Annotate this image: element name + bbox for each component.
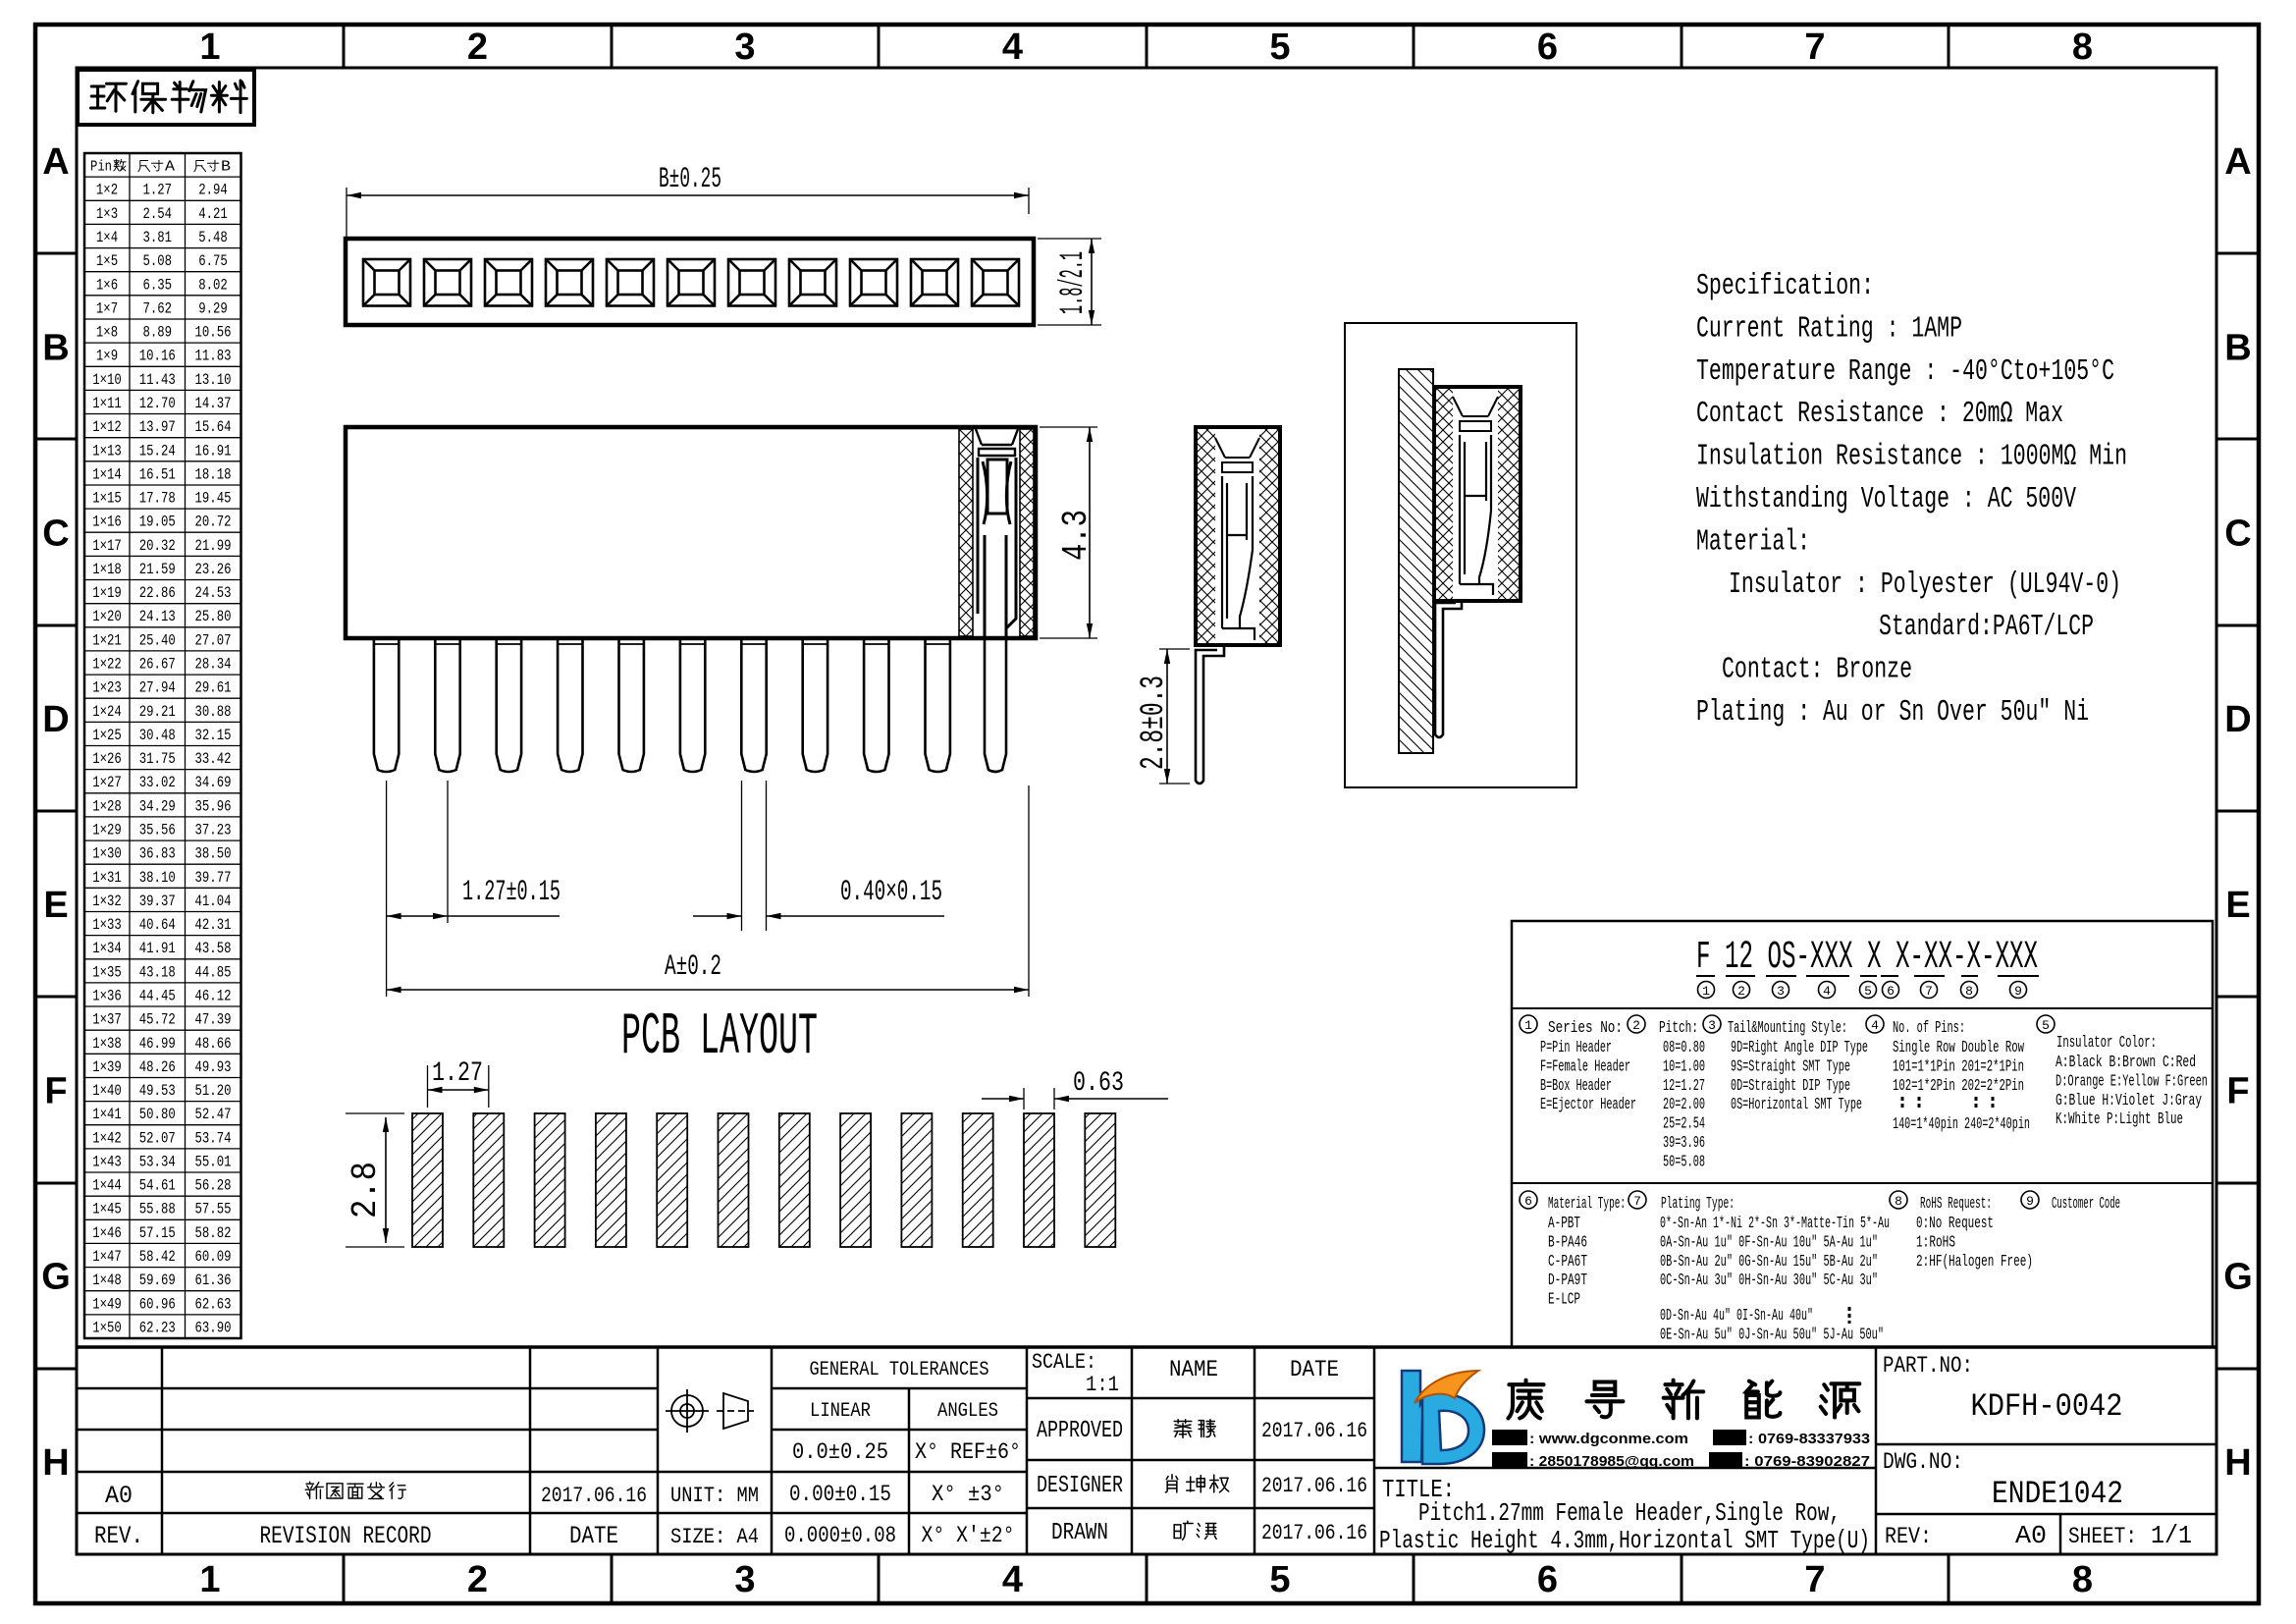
svg-text:G: G bbox=[41, 1257, 71, 1298]
svg-text:57.55: 57.55 bbox=[195, 1201, 232, 1218]
svg-text:1×44: 1×44 bbox=[92, 1177, 122, 1195]
svg-text:33.02: 33.02 bbox=[139, 774, 176, 791]
svg-text:61.36: 61.36 bbox=[195, 1272, 232, 1289]
svg-text:REV.: REV. bbox=[94, 1522, 143, 1550]
svg-text:140=1*40pin 240=2*40pin: 140=1*40pin 240=2*40pin bbox=[1893, 1114, 2030, 1133]
svg-text:46.99: 46.99 bbox=[139, 1035, 176, 1053]
svg-text:1×17: 1×17 bbox=[92, 537, 122, 555]
svg-text:1×33: 1×33 bbox=[92, 916, 122, 934]
svg-text:48.26: 48.26 bbox=[139, 1058, 176, 1076]
svg-text:Pin: Pin bbox=[90, 159, 112, 176]
svg-text:51.20: 51.20 bbox=[195, 1082, 232, 1100]
svg-text:DATE: DATE bbox=[1290, 1357, 1339, 1382]
svg-text:62.23: 62.23 bbox=[139, 1319, 176, 1336]
svg-text:2: 2 bbox=[1737, 984, 1745, 999]
svg-text:5: 5 bbox=[1269, 1559, 1290, 1600]
svg-text:39.77: 39.77 bbox=[195, 869, 232, 887]
svg-text:0A-Sn-Au 1u" 0F-Sn-Au 10u" 5A: 0A-Sn-Au 1u" 0F-Sn-Au 10u" 5A-Au 1u" bbox=[1660, 1232, 1878, 1251]
svg-text:3: 3 bbox=[734, 1559, 755, 1600]
svg-text:: 0769-83337933: : 0769-83337933 bbox=[1748, 1431, 1870, 1447]
svg-text:1×24: 1×24 bbox=[92, 703, 122, 721]
svg-text:2.8±0.3: 2.8±0.3 bbox=[1136, 676, 1173, 770]
svg-text:D:Orange E:Yellow F:Green: D:Orange E:Yellow F:Green bbox=[2056, 1071, 2208, 1090]
svg-text:1×25: 1×25 bbox=[92, 727, 122, 744]
svg-text:42.31: 42.31 bbox=[195, 916, 232, 934]
svg-text:Plastic Height 4.3mm,Horizonta: Plastic Height 4.3mm,Horizontal SMT Type… bbox=[1379, 1526, 1870, 1555]
svg-text:11.83: 11.83 bbox=[195, 348, 232, 365]
svg-text:0E-Sn-Au 5u" 0J-Sn-Au 50u" 5J: 0E-Sn-Au 5u" 0J-Sn-Au 50u" 5J-Au 50u" bbox=[1660, 1325, 1884, 1343]
svg-text:12=1.27: 12=1.27 bbox=[1663, 1076, 1705, 1095]
svg-text:58.42: 58.42 bbox=[139, 1248, 176, 1266]
svg-text:1:RoHS: 1:RoHS bbox=[1916, 1232, 1955, 1251]
svg-text:E-LCP: E-LCP bbox=[1548, 1290, 1580, 1309]
svg-text:K:White P:Light Blue: K:White P:Light Blue bbox=[2056, 1110, 2183, 1128]
svg-text:49.93: 49.93 bbox=[195, 1058, 232, 1076]
svg-text:1×42: 1×42 bbox=[92, 1129, 122, 1147]
svg-text:21.59: 21.59 bbox=[139, 561, 176, 578]
svg-text:ENDE1042: ENDE1042 bbox=[1992, 1476, 2123, 1512]
svg-text:Contact Resistance : 20mΩ Max: Contact Resistance : 20mΩ Max bbox=[1696, 397, 2063, 431]
svg-text:0.0±0.25: 0.0±0.25 bbox=[792, 1439, 888, 1465]
svg-text:32.15: 32.15 bbox=[195, 727, 232, 744]
svg-text:ANGLES: ANGLES bbox=[937, 1400, 998, 1423]
svg-text:X° REF±6°: X° REF±6° bbox=[915, 1439, 1021, 1465]
svg-text:1×12: 1×12 bbox=[92, 418, 122, 436]
svg-text:6.75: 6.75 bbox=[198, 252, 228, 270]
svg-text:50.80: 50.80 bbox=[139, 1106, 176, 1123]
svg-text:E: E bbox=[43, 885, 68, 926]
svg-text:KDFH-0042: KDFH-0042 bbox=[1971, 1388, 2123, 1425]
svg-text:7: 7 bbox=[1633, 1194, 1641, 1209]
svg-text:1×20: 1×20 bbox=[92, 608, 122, 625]
svg-text:Insulator Color:: Insulator Color: bbox=[2056, 1034, 2157, 1053]
svg-text:1×6: 1×6 bbox=[96, 276, 118, 294]
svg-text:10.56: 10.56 bbox=[195, 324, 232, 342]
svg-text:34.69: 34.69 bbox=[195, 774, 232, 791]
svg-text:19.45: 19.45 bbox=[195, 490, 232, 508]
svg-text:38.10: 38.10 bbox=[139, 869, 176, 887]
svg-text:25.80: 25.80 bbox=[195, 608, 232, 625]
svg-text:7.62: 7.62 bbox=[142, 299, 172, 317]
svg-text:8.89: 8.89 bbox=[142, 324, 172, 342]
svg-text:36.83: 36.83 bbox=[139, 845, 176, 863]
svg-text:9: 9 bbox=[2014, 984, 2022, 999]
svg-text:17.78: 17.78 bbox=[139, 490, 176, 508]
svg-text:52.07: 52.07 bbox=[139, 1129, 176, 1147]
svg-text:54.61: 54.61 bbox=[139, 1177, 176, 1195]
svg-text:1×22: 1×22 bbox=[92, 656, 122, 674]
svg-text:6: 6 bbox=[1524, 1194, 1532, 1209]
svg-text:1×28: 1×28 bbox=[92, 797, 122, 815]
svg-text:11.43: 11.43 bbox=[139, 371, 176, 389]
svg-text:GENERAL TOLERANCES: GENERAL TOLERANCES bbox=[810, 1359, 989, 1381]
svg-text:A: A bbox=[2224, 141, 2251, 183]
svg-text:DRAWN: DRAWN bbox=[1051, 1520, 1108, 1546]
svg-text:1: 1 bbox=[199, 1559, 220, 1600]
svg-text:PART.NO:: PART.NO: bbox=[1883, 1353, 1973, 1379]
svg-text:B-PA46: B-PA46 bbox=[1548, 1232, 1587, 1251]
svg-text:15.64: 15.64 bbox=[195, 418, 232, 436]
svg-text:A: A bbox=[165, 159, 175, 176]
svg-text:6: 6 bbox=[1887, 984, 1895, 999]
svg-text:: www.dgconme.com: : www.dgconme.com bbox=[1529, 1431, 1688, 1447]
svg-text:101=1*1Pin 201=2*1Pin: 101=1*1Pin 201=2*1Pin bbox=[1893, 1056, 2024, 1075]
svg-text:41.04: 41.04 bbox=[195, 893, 232, 910]
svg-text:Pitch1.27mm Female Header,Sing: Pitch1.27mm Female Header,Single Row, bbox=[1418, 1498, 1841, 1528]
svg-text:4.3: 4.3 bbox=[1056, 510, 1096, 561]
svg-text:12.70: 12.70 bbox=[139, 395, 176, 412]
svg-text:57.15: 57.15 bbox=[139, 1224, 176, 1242]
svg-text:41.91: 41.91 bbox=[139, 940, 176, 957]
svg-text:31.75: 31.75 bbox=[139, 750, 176, 768]
svg-text:35.96: 35.96 bbox=[195, 797, 232, 815]
svg-text:REV:: REV: bbox=[1885, 1524, 1932, 1549]
svg-text:1: 1 bbox=[1524, 1018, 1532, 1033]
svg-text:0S=Horizontal SMT Type: 0S=Horizontal SMT Type bbox=[1731, 1095, 1862, 1113]
svg-text:1×3: 1×3 bbox=[96, 205, 118, 223]
svg-text:9.29: 9.29 bbox=[198, 299, 228, 317]
svg-text:1×43: 1×43 bbox=[92, 1153, 122, 1170]
svg-text:7: 7 bbox=[1925, 984, 1933, 999]
svg-text:G: G bbox=[2223, 1257, 2253, 1298]
svg-text:16.91: 16.91 bbox=[195, 442, 232, 460]
svg-text:25=2.54: 25=2.54 bbox=[1663, 1114, 1705, 1133]
svg-text:UNIT: MM: UNIT: MM bbox=[670, 1484, 759, 1508]
svg-text:: 0769-83902827: : 0769-83902827 bbox=[1744, 1453, 1870, 1470]
svg-text:1×36: 1×36 bbox=[92, 987, 122, 1004]
svg-text:44.45: 44.45 bbox=[139, 987, 176, 1004]
svg-text:1×32: 1×32 bbox=[92, 893, 122, 910]
svg-text:1:1: 1:1 bbox=[1086, 1373, 1119, 1397]
svg-text:40.64: 40.64 bbox=[139, 916, 176, 934]
svg-text:59.69: 59.69 bbox=[139, 1272, 176, 1289]
svg-text:3: 3 bbox=[1777, 984, 1785, 999]
svg-text:REVISION RECORD: REVISION RECORD bbox=[260, 1522, 432, 1550]
svg-text:24.13: 24.13 bbox=[139, 608, 176, 625]
svg-text:47.39: 47.39 bbox=[195, 1011, 232, 1029]
svg-text:20.32: 20.32 bbox=[139, 537, 176, 555]
svg-text:Tail&Mounting Style:: Tail&Mounting Style: bbox=[1728, 1019, 1847, 1038]
svg-text:1×41: 1×41 bbox=[92, 1106, 122, 1123]
svg-text:0D-Sn-Au 4u" 0I-Sn-Au 40u": 0D-Sn-Au 4u" 0I-Sn-Au 40u" bbox=[1660, 1306, 1813, 1325]
svg-text:2:HF(Halogen Free): 2:HF(Halogen Free) bbox=[1916, 1252, 2033, 1271]
svg-text:16.51: 16.51 bbox=[139, 465, 176, 483]
svg-text:Series No:: Series No: bbox=[1548, 1019, 1623, 1038]
svg-text:Contact: Bronze: Contact: Bronze bbox=[1722, 653, 1912, 687]
svg-text:50=5.08: 50=5.08 bbox=[1663, 1152, 1705, 1170]
svg-text:2.8: 2.8 bbox=[346, 1162, 386, 1218]
svg-text:19.05: 19.05 bbox=[139, 514, 176, 531]
svg-text:6: 6 bbox=[1537, 1559, 1558, 1600]
svg-text:8: 8 bbox=[2072, 1559, 2093, 1600]
svg-text:1×16: 1×16 bbox=[92, 514, 122, 531]
svg-text:Customer Code: Customer Code bbox=[2052, 1195, 2120, 1214]
svg-text:13.97: 13.97 bbox=[139, 418, 176, 436]
svg-text:8: 8 bbox=[1965, 984, 1973, 999]
svg-text:29.61: 29.61 bbox=[195, 679, 232, 697]
svg-text:34.29: 34.29 bbox=[139, 797, 176, 815]
svg-text:C: C bbox=[2224, 514, 2251, 555]
svg-text:14.37: 14.37 bbox=[195, 395, 232, 412]
svg-text:53.34: 53.34 bbox=[139, 1153, 176, 1170]
svg-text:33.42: 33.42 bbox=[195, 750, 232, 768]
svg-text:0D=Straight DIP Type: 0D=Straight DIP Type bbox=[1731, 1076, 1850, 1095]
svg-text:55.01: 55.01 bbox=[195, 1153, 232, 1170]
svg-text:0:No Request: 0:No Request bbox=[1916, 1214, 1994, 1232]
svg-text:5.08: 5.08 bbox=[142, 252, 172, 270]
svg-text:Material:: Material: bbox=[1696, 524, 1810, 559]
svg-text:7: 7 bbox=[1804, 27, 1825, 68]
svg-text:5: 5 bbox=[2042, 1018, 2050, 1033]
svg-text:PCB LAYOUT: PCB LAYOUT bbox=[621, 1004, 818, 1071]
svg-text:4: 4 bbox=[1823, 984, 1831, 999]
svg-text:60.09: 60.09 bbox=[195, 1248, 232, 1266]
svg-text:28.34: 28.34 bbox=[195, 656, 232, 674]
svg-text:F: F bbox=[2226, 1070, 2249, 1111]
svg-text:9D=Right Angle DIP Type: 9D=Right Angle DIP Type bbox=[1731, 1038, 1868, 1056]
svg-text:10=1.00: 10=1.00 bbox=[1663, 1056, 1705, 1075]
svg-text:B: B bbox=[221, 159, 231, 176]
svg-text:8: 8 bbox=[2072, 27, 2093, 68]
svg-text:63.90: 63.90 bbox=[195, 1319, 232, 1336]
svg-text:5: 5 bbox=[1269, 27, 1290, 68]
svg-text:Plating Type:: Plating Type: bbox=[1661, 1195, 1735, 1214]
svg-text:DATE: DATE bbox=[569, 1522, 618, 1550]
svg-text:20.72: 20.72 bbox=[195, 514, 232, 531]
svg-text:2: 2 bbox=[467, 27, 488, 68]
svg-text:0.63: 0.63 bbox=[1073, 1068, 1124, 1099]
svg-text:15.24: 15.24 bbox=[139, 442, 176, 460]
svg-text:30.88: 30.88 bbox=[195, 703, 232, 721]
svg-text:23.26: 23.26 bbox=[195, 561, 232, 578]
svg-text:4: 4 bbox=[1002, 27, 1023, 68]
svg-text:6.35: 6.35 bbox=[142, 276, 172, 294]
svg-text:DESIGNER: DESIGNER bbox=[1037, 1473, 1123, 1499]
svg-text:P=Pin Header: P=Pin Header bbox=[1540, 1038, 1612, 1056]
svg-text:62.63: 62.63 bbox=[195, 1295, 232, 1313]
svg-text:1×39: 1×39 bbox=[92, 1058, 122, 1076]
svg-text:A0: A0 bbox=[105, 1482, 133, 1510]
svg-text:Standard:PA6T/LCP: Standard:PA6T/LCP bbox=[1879, 610, 2094, 644]
svg-text:24.53: 24.53 bbox=[195, 584, 232, 602]
svg-text:1×29: 1×29 bbox=[92, 821, 122, 839]
svg-text:1×21: 1×21 bbox=[92, 631, 122, 649]
svg-text:30.48: 30.48 bbox=[139, 727, 176, 744]
svg-text:46.12: 46.12 bbox=[195, 987, 232, 1004]
svg-text:B: B bbox=[2224, 327, 2251, 368]
svg-text:49.53: 49.53 bbox=[139, 1082, 176, 1100]
svg-text:1×40: 1×40 bbox=[92, 1082, 122, 1100]
svg-text:1: 1 bbox=[199, 27, 220, 68]
svg-text:1×8: 1×8 bbox=[96, 324, 118, 342]
svg-text:1×13: 1×13 bbox=[92, 442, 122, 460]
svg-text:SIZE: A4: SIZE: A4 bbox=[670, 1525, 759, 1549]
svg-text:1×30: 1×30 bbox=[92, 845, 122, 863]
svg-text:26.67: 26.67 bbox=[139, 656, 176, 674]
svg-text:39.37: 39.37 bbox=[139, 893, 176, 910]
svg-text:0.40×0.15: 0.40×0.15 bbox=[840, 876, 942, 909]
svg-text:F: F bbox=[44, 1070, 67, 1111]
svg-text:2017.06.16: 2017.06.16 bbox=[1261, 1521, 1367, 1545]
svg-text:1×14: 1×14 bbox=[92, 465, 122, 483]
svg-text:43.18: 43.18 bbox=[139, 963, 176, 981]
svg-text:D: D bbox=[42, 699, 69, 740]
svg-text:SHEET:: SHEET: bbox=[2068, 1524, 2137, 1549]
svg-text:1×15: 1×15 bbox=[92, 490, 122, 508]
svg-text:53.74: 53.74 bbox=[195, 1129, 232, 1147]
svg-text:1×11: 1×11 bbox=[92, 395, 122, 412]
svg-text:18.18: 18.18 bbox=[195, 465, 232, 483]
svg-text:6: 6 bbox=[1537, 27, 1558, 68]
svg-text:1×4: 1×4 bbox=[96, 229, 118, 246]
svg-text:2.94: 2.94 bbox=[198, 182, 228, 199]
svg-text:1×5: 1×5 bbox=[96, 252, 118, 270]
svg-text:Plating : Au or Sn Over 50u" N: Plating : Au or Sn Over 50u" Ni bbox=[1696, 695, 2089, 730]
svg-text:60.96: 60.96 bbox=[139, 1295, 176, 1313]
svg-text:1: 1 bbox=[1702, 984, 1710, 999]
svg-text:102=1*2Pin 202=2*2Pin: 102=1*2Pin 202=2*2Pin bbox=[1893, 1076, 2024, 1095]
svg-text:4: 4 bbox=[1002, 1559, 1023, 1600]
svg-text:X° X'±2°: X° X'±2° bbox=[922, 1523, 1015, 1548]
svg-text:1/1: 1/1 bbox=[2151, 1521, 2192, 1550]
svg-text:9: 9 bbox=[2026, 1194, 2034, 1209]
svg-text:Pitch:: Pitch: bbox=[1659, 1019, 1698, 1038]
svg-text:39=3.96: 39=3.96 bbox=[1663, 1133, 1705, 1152]
svg-text:1.27: 1.27 bbox=[142, 182, 172, 199]
svg-text:B: B bbox=[42, 327, 69, 368]
svg-text:C: C bbox=[42, 514, 69, 555]
svg-text:38.50: 38.50 bbox=[195, 845, 232, 863]
svg-text:A0: A0 bbox=[2015, 1521, 2047, 1550]
svg-text:Specification:: Specification: bbox=[1696, 269, 1874, 303]
svg-text:A-PBT: A-PBT bbox=[1548, 1214, 1580, 1232]
svg-text:0B-Sn-Au 2u" 0G-Sn-Au 15u" 5B: 0B-Sn-Au 2u" 0G-Sn-Au 15u" 5B-Au 2u" bbox=[1660, 1252, 1878, 1271]
svg-text:58.82: 58.82 bbox=[195, 1224, 232, 1242]
svg-text:44.85: 44.85 bbox=[195, 963, 232, 981]
svg-text:56.28: 56.28 bbox=[195, 1177, 232, 1195]
svg-text:08=0.80: 08=0.80 bbox=[1663, 1038, 1705, 1056]
svg-text:B±0.25: B±0.25 bbox=[659, 163, 721, 196]
svg-text:Single Row Double Row: Single Row Double Row bbox=[1893, 1038, 2024, 1056]
svg-text:37.23: 37.23 bbox=[195, 821, 232, 839]
svg-text:1×18: 1×18 bbox=[92, 561, 122, 578]
svg-text:LINEAR: LINEAR bbox=[810, 1400, 871, 1423]
svg-text:Temperature Range : -40°Cto+10: Temperature Range : -40°Cto+105°C bbox=[1696, 354, 2114, 389]
svg-text:Withstanding Voltage : AC 500V: Withstanding Voltage : AC 500V bbox=[1696, 482, 2076, 516]
svg-text:DWG.NO:: DWG.NO: bbox=[1883, 1449, 1963, 1475]
svg-text:1×37: 1×37 bbox=[92, 1011, 122, 1029]
svg-text:Material Type:: Material Type: bbox=[1548, 1195, 1626, 1214]
svg-text:1×27: 1×27 bbox=[92, 774, 122, 791]
svg-text:0C-Sn-Au 3u" 0H-Sn-Au 30u" 5C: 0C-Sn-Au 3u" 0H-Sn-Au 30u" 5C-Au 3u" bbox=[1660, 1271, 1878, 1289]
svg-text:3: 3 bbox=[1708, 1018, 1716, 1033]
svg-text:29.21: 29.21 bbox=[139, 703, 176, 721]
svg-text:1×46: 1×46 bbox=[92, 1224, 122, 1242]
svg-text:No. of Pins:: No. of Pins: bbox=[1893, 1019, 1965, 1038]
svg-text:A:Black B:Brown C:Red: A:Black B:Brown C:Red bbox=[2056, 1053, 2196, 1071]
svg-text:E=Ejector Header: E=Ejector Header bbox=[1540, 1095, 1636, 1113]
svg-text:1×2: 1×2 bbox=[96, 182, 118, 199]
svg-text:3.81: 3.81 bbox=[142, 229, 172, 246]
svg-text:B=Box Header: B=Box Header bbox=[1540, 1076, 1612, 1095]
svg-text:0.00±0.15: 0.00±0.15 bbox=[789, 1482, 891, 1507]
svg-text:F=Female Header: F=Female Header bbox=[1540, 1056, 1630, 1075]
svg-text:9S=Straight SMT Type: 9S=Straight SMT Type bbox=[1731, 1056, 1850, 1075]
svg-text:1.27: 1.27 bbox=[432, 1058, 483, 1089]
svg-text:8: 8 bbox=[1895, 1194, 1902, 1209]
svg-text:NAME: NAME bbox=[1169, 1357, 1218, 1382]
svg-text:0*-Sn-An 1*-Ni 2*-Sn 3*-Matte-: 0*-Sn-An 1*-Ni 2*-Sn 3*-Matte-Tin 5*-Au bbox=[1660, 1214, 1890, 1232]
svg-text:A: A bbox=[42, 141, 69, 183]
svg-text:4: 4 bbox=[1871, 1018, 1879, 1033]
svg-text:3: 3 bbox=[734, 27, 755, 68]
svg-text:1×47: 1×47 bbox=[92, 1248, 122, 1266]
svg-text:13.10: 13.10 bbox=[195, 371, 232, 389]
svg-text:H: H bbox=[2224, 1442, 2251, 1484]
svg-text:7: 7 bbox=[1804, 1559, 1825, 1600]
svg-text:43.58: 43.58 bbox=[195, 940, 232, 957]
svg-text:2.54: 2.54 bbox=[142, 205, 172, 223]
svg-text:2017.06.16: 2017.06.16 bbox=[541, 1484, 647, 1508]
svg-text:2017.06.16: 2017.06.16 bbox=[1261, 1474, 1367, 1498]
svg-text:Insulator : Polyester (UL94V-0: Insulator : Polyester (UL94V-0) bbox=[1729, 568, 2121, 602]
svg-text:: 2850178985@qq.com: : 2850178985@qq.com bbox=[1529, 1453, 1694, 1470]
svg-text:5: 5 bbox=[1864, 984, 1872, 999]
svg-text:SCALE:: SCALE: bbox=[1032, 1350, 1096, 1375]
svg-text:C-PA6T: C-PA6T bbox=[1548, 1252, 1587, 1271]
svg-text:E: E bbox=[2225, 885, 2250, 926]
svg-text:25.40: 25.40 bbox=[139, 631, 176, 649]
svg-text:1×50: 1×50 bbox=[92, 1319, 122, 1336]
svg-text:APPROVED: APPROVED bbox=[1037, 1418, 1123, 1444]
svg-text:D-PA9T: D-PA9T bbox=[1548, 1271, 1587, 1289]
svg-text:H: H bbox=[42, 1442, 69, 1484]
svg-text:G:Blue H:Violet J:Gray: G:Blue H:Violet J:Gray bbox=[2056, 1091, 2202, 1110]
svg-text:4.21: 4.21 bbox=[198, 205, 228, 223]
svg-text:2: 2 bbox=[1632, 1018, 1640, 1033]
svg-text:55.88: 55.88 bbox=[139, 1201, 176, 1218]
svg-text:Insulation Resistance : 1000MΩ: Insulation Resistance : 1000MΩ Min bbox=[1696, 440, 2127, 474]
svg-text:21.99: 21.99 bbox=[195, 537, 232, 555]
svg-text:1×10: 1×10 bbox=[92, 371, 122, 389]
svg-text:2017.06.16: 2017.06.16 bbox=[1261, 1419, 1367, 1443]
svg-text:2: 2 bbox=[467, 1559, 488, 1600]
svg-text:1×48: 1×48 bbox=[92, 1272, 122, 1289]
svg-text:1×31: 1×31 bbox=[92, 869, 122, 887]
svg-text:Current Rating : 1AMP: Current Rating : 1AMP bbox=[1696, 311, 1962, 346]
svg-text:1×45: 1×45 bbox=[92, 1201, 122, 1218]
svg-text:A±0.2: A±0.2 bbox=[665, 950, 721, 984]
svg-text:1×7: 1×7 bbox=[96, 299, 118, 317]
svg-text:0.000±0.08: 0.000±0.08 bbox=[784, 1523, 896, 1548]
svg-text:1×19: 1×19 bbox=[92, 584, 122, 602]
svg-text:8.02: 8.02 bbox=[198, 276, 228, 294]
svg-text:1×34: 1×34 bbox=[92, 940, 122, 957]
svg-text:1×9: 1×9 bbox=[96, 348, 118, 365]
svg-text:10.16: 10.16 bbox=[139, 348, 176, 365]
svg-text:52.47: 52.47 bbox=[195, 1106, 232, 1123]
svg-text:5.48: 5.48 bbox=[198, 229, 228, 246]
svg-text:22.86: 22.86 bbox=[139, 584, 176, 602]
svg-text:20=2.00: 20=2.00 bbox=[1663, 1095, 1705, 1113]
svg-text:1.27±0.15: 1.27±0.15 bbox=[462, 876, 561, 909]
svg-text:1×49: 1×49 bbox=[92, 1295, 122, 1313]
svg-text:1×26: 1×26 bbox=[92, 750, 122, 768]
svg-text:48.66: 48.66 bbox=[195, 1035, 232, 1053]
svg-text:27.07: 27.07 bbox=[195, 631, 232, 649]
svg-text:1.8/2.1: 1.8/2.1 bbox=[1055, 251, 1093, 314]
svg-text:1×38: 1×38 bbox=[92, 1035, 122, 1053]
